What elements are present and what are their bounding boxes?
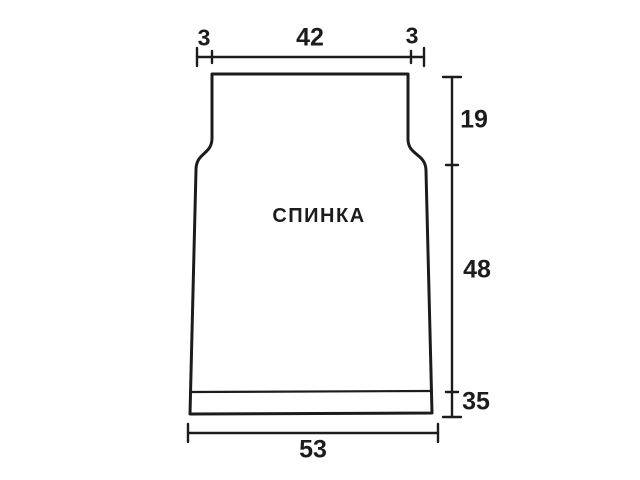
- dim-label-right-middle: 48: [463, 258, 491, 283]
- dim-label-right-upper: 19: [460, 108, 488, 133]
- dim-label-top-right: 3: [406, 25, 419, 48]
- pattern-schematic-drawing: [0, 0, 640, 480]
- right-dimension-line: [443, 77, 461, 417]
- garment-outline: [190, 74, 432, 414]
- dim-label-right-lower: 35: [462, 390, 490, 415]
- ribbing-line: [191, 391, 431, 392]
- dim-label-top-left: 3: [198, 27, 211, 50]
- dim-label-top-center: 42: [296, 26, 324, 51]
- pattern-diagram: 3 42 3 19 48 35 53 СПИНКА: [0, 0, 640, 480]
- piece-name-label: СПИНКА: [272, 206, 365, 226]
- dim-label-bottom: 53: [299, 438, 327, 463]
